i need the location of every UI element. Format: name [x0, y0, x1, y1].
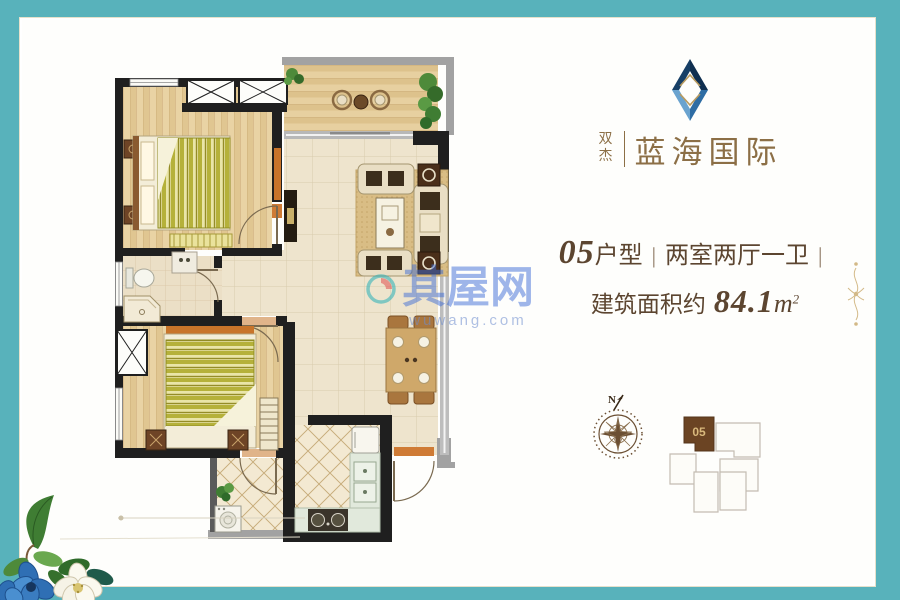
poster: 其屋网 wuwang.com 双杰 蓝海国际 05户型|两室两厅一卫| 建筑面积…: [0, 0, 900, 600]
dining-table: [386, 328, 436, 392]
separator: |: [809, 243, 831, 268]
area-unit: m: [774, 289, 793, 318]
dresser: [274, 148, 281, 200]
brand-prefix: 双杰: [598, 132, 614, 166]
unit-number: 05: [559, 234, 595, 271]
fridge: [352, 427, 379, 453]
area-superscript: 2: [793, 291, 800, 306]
rug: [170, 234, 232, 247]
brand-lockup: 双杰 蓝海国际: [575, 126, 805, 172]
unit-rooms: 两室两厅一卫: [665, 243, 809, 269]
hallway-floor: [222, 250, 284, 316]
area-label: 建筑面积约: [591, 292, 706, 317]
white-flower: [50, 562, 106, 600]
entry-door-swing: [394, 461, 434, 501]
compass-rose: N: [584, 390, 652, 464]
headboard: [166, 326, 254, 334]
compass-north-label: N: [608, 394, 616, 406]
coffee-table: [376, 198, 404, 248]
balcony-table: [354, 95, 368, 109]
unit-type-suffix: 户型: [595, 243, 643, 269]
dining-furniture: [386, 316, 436, 404]
plant-large: [418, 73, 443, 129]
toilet: [126, 268, 133, 288]
brand-divider: [624, 131, 625, 167]
area-info-line: 建筑面积约84.1m2: [530, 283, 860, 320]
brand-logo-diamond-icon: [668, 58, 712, 122]
building-position-diagram: 05: [648, 402, 780, 514]
leaf: [26, 495, 54, 549]
living-window: [440, 252, 449, 455]
area-value: 84.1: [706, 283, 774, 319]
bed-double: [133, 136, 230, 230]
unit-info-line: 05户型|两室两厅一卫|: [530, 234, 860, 272]
separator: |: [643, 243, 665, 268]
brand-name: 蓝海国际: [635, 127, 783, 172]
flower-decoration: [0, 455, 310, 600]
sink: [172, 252, 197, 273]
shelf-rack: [260, 398, 278, 450]
gold-flourish-ornament: [842, 260, 870, 328]
stove: [308, 509, 348, 531]
highlighted-unit-label: 05: [692, 425, 706, 439]
